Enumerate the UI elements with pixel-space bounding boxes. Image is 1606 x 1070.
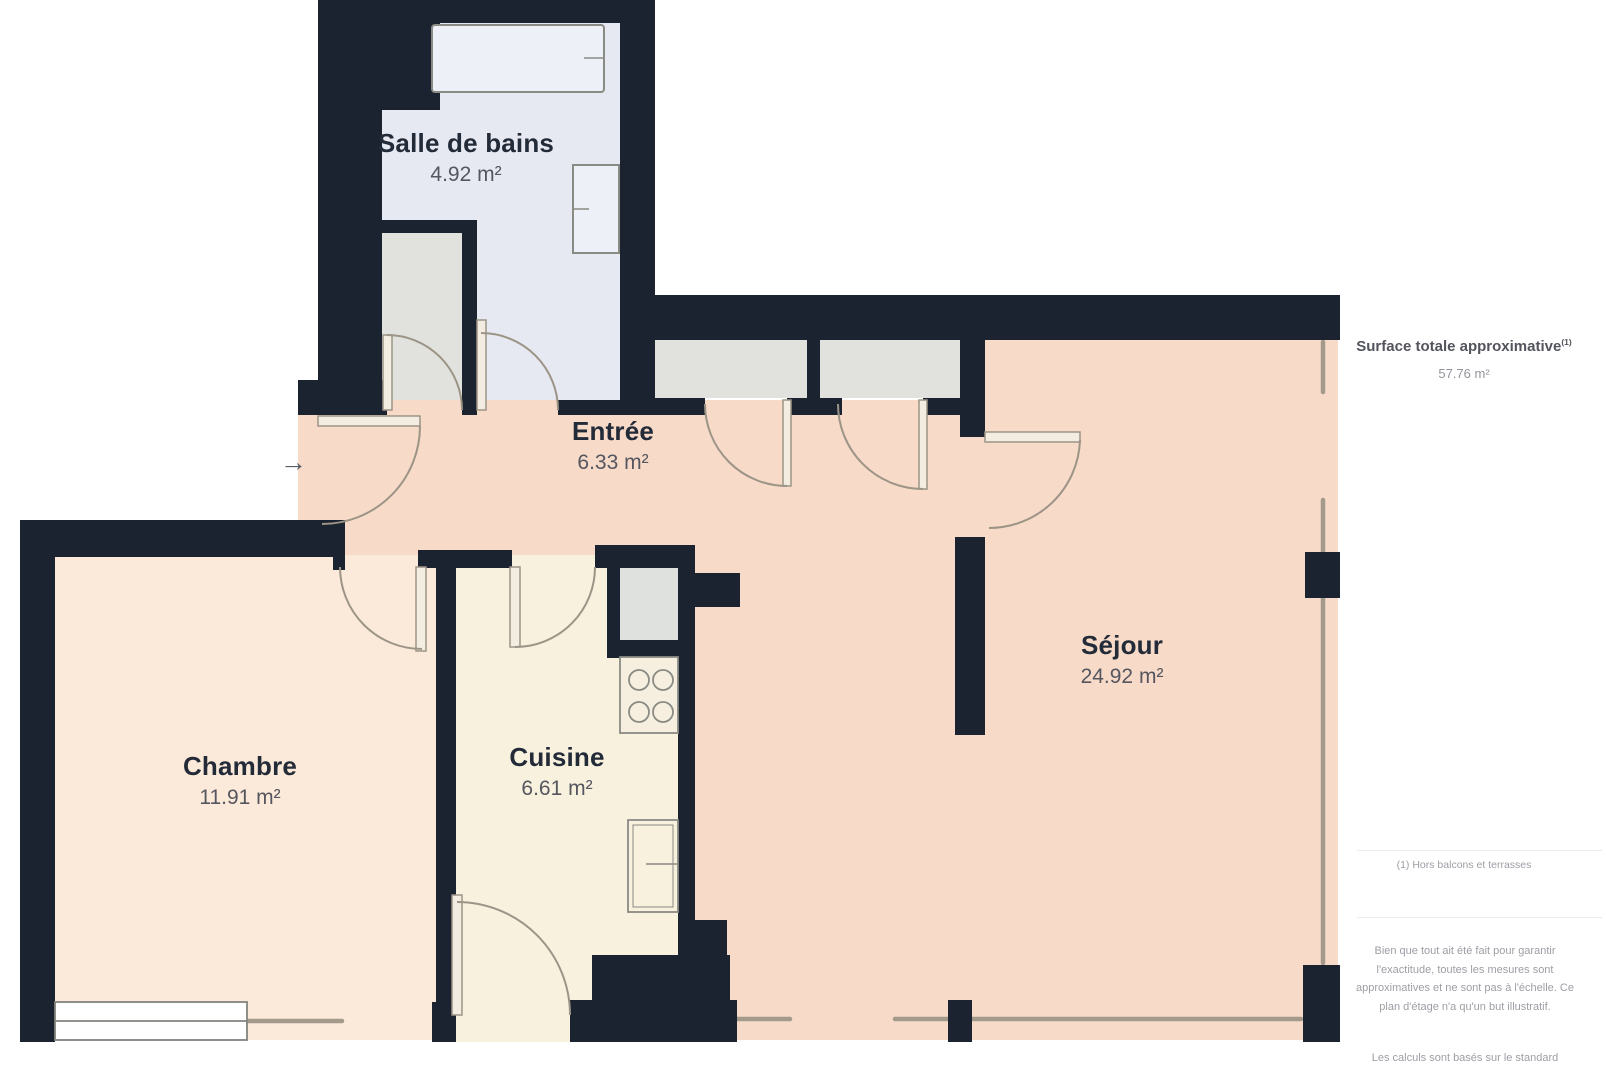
- divider: [1357, 850, 1602, 851]
- divider: [1357, 917, 1602, 918]
- disclaimer-text: Bien que tout ait été fait pour garantir…: [1351, 942, 1579, 1016]
- floor-plan-page: Salle de bains 4.92 m² Entrée 6.33 m² Ch…: [0, 0, 1606, 1070]
- sink-fixture: [628, 820, 678, 912]
- front-door-leaf: [318, 416, 420, 426]
- hall-closet1-door-leaf: [783, 400, 791, 486]
- hall-closet1-floor: [655, 340, 807, 398]
- surface-total-title-text: Surface totale approximative: [1356, 338, 1561, 355]
- surface-total-title-superscript: (1): [1561, 337, 1571, 347]
- bedroom-floor: [55, 555, 437, 1040]
- kitchen-door-leaf: [510, 567, 520, 647]
- floor-plan-svg: [0, 0, 1606, 1070]
- kitchen-duct: [620, 568, 678, 640]
- entrance-arrow-icon: →: [280, 449, 307, 476]
- stove-fixture: [620, 657, 678, 733]
- footnote-balconies: (1) Hors balcons et terrasses: [1349, 859, 1579, 871]
- bathroom-closet-floor: [382, 233, 462, 400]
- bedroom-door-leaf: [416, 567, 426, 651]
- hall-closet2-floor: [820, 340, 960, 398]
- surface-total-title: Surface totale approximative(1): [1344, 337, 1584, 355]
- living-door-leaf: [985, 432, 1080, 442]
- hall-closet2-door-leaf: [919, 400, 927, 489]
- bathtub-fixture: [432, 25, 604, 92]
- standard-note-text: Les calculs sont basés sur le standard: [1351, 1049, 1579, 1067]
- kitchen-south-door-leaf: [452, 895, 462, 1015]
- surface-total-value: 57.76 m²: [1344, 366, 1584, 381]
- bath-closet-door-leaf: [383, 335, 392, 410]
